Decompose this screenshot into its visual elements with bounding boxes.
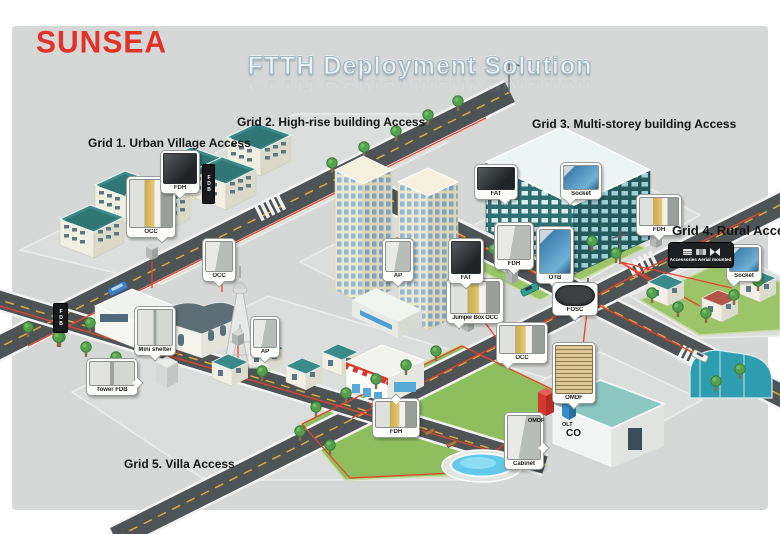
socket-device-image <box>563 165 599 190</box>
aerial-accessory-icons <box>683 247 720 256</box>
ap-device-image <box>385 241 411 272</box>
clamp-icon <box>696 249 706 255</box>
callout-fat-highrise: FAT <box>448 238 484 284</box>
occ-cabinet-image <box>205 241 233 272</box>
callout-mini-shelter: Mini shelter <box>134 306 176 356</box>
tower-fdb-image <box>89 361 134 386</box>
otb-device-image <box>539 229 571 274</box>
ftth-solution-poster: SUNSEA FTTH Deployment Solution FTTH Dep… <box>0 0 780 534</box>
grid2-label: Grid 2. High-rise building Access <box>237 115 425 129</box>
spool-icon <box>683 249 692 255</box>
fosc-closure-image <box>555 285 595 306</box>
mini-shelter-box <box>156 356 178 388</box>
fat-device-image <box>451 241 481 274</box>
grid5-label: Grid 5. Villa Access <box>124 457 235 471</box>
ap-device-image <box>253 319 278 348</box>
grid4-label: Grid 4. Rural Access <box>672 223 780 238</box>
fdh-cabinet-image <box>375 401 416 428</box>
jumper-occ-cabinet-image <box>450 281 501 314</box>
grid1-label: Grid 1. Urban Village Access <box>88 136 251 150</box>
callout-ap-villa: AP <box>250 316 280 358</box>
callout-ap-highrise: AP <box>382 238 414 282</box>
wall-fdb-box: FDB <box>202 164 215 204</box>
brand-logo: SUNSEA <box>36 25 167 60</box>
fdh-cabinet-image <box>639 197 679 226</box>
fdh-device-image <box>163 153 197 184</box>
callout-fdh-grid1: FDH <box>160 150 200 194</box>
callout-fat-multistorey: FAT <box>474 164 518 200</box>
callout-fdh-villa: FDH <box>372 398 420 438</box>
callout-jumper-occ: Jumper Box OCC <box>446 278 504 324</box>
page-title-wrap: FTTH Deployment Solution FTTH Deployment… <box>240 52 600 104</box>
anchor-clamp-icon <box>710 248 720 256</box>
callout-occ-center: OCC <box>496 322 548 364</box>
callout-occ-street: OCC <box>202 238 236 282</box>
callout-tower-fdb: Tower FDB <box>86 358 138 396</box>
fat-device-image <box>477 167 515 190</box>
occ-cabinet-image <box>499 325 544 354</box>
page-title-reflection: FTTH Deployment Solution <box>240 75 600 104</box>
omdf-label: OMDF <box>528 418 544 424</box>
mini-shelter-image <box>137 309 173 346</box>
omdf-rack-image <box>555 345 593 394</box>
co-label: CO <box>566 428 581 439</box>
aerial-accessories-strip: Accessories Aerial mounted <box>668 242 734 268</box>
fdh-cabinet-image <box>497 225 531 260</box>
grid3-label: Grid 3. Multi-storey building Access <box>532 117 736 131</box>
callout-otb-multistorey: OTB <box>536 226 574 284</box>
callout-fosc: FOSC <box>552 282 598 316</box>
wall-fdb-box: FDB <box>53 303 68 333</box>
callout-socket-multistorey: Socket <box>560 162 602 200</box>
callout-omdf: OMDF <box>552 342 596 404</box>
callout-fdh-multistorey: FDH <box>494 222 534 270</box>
